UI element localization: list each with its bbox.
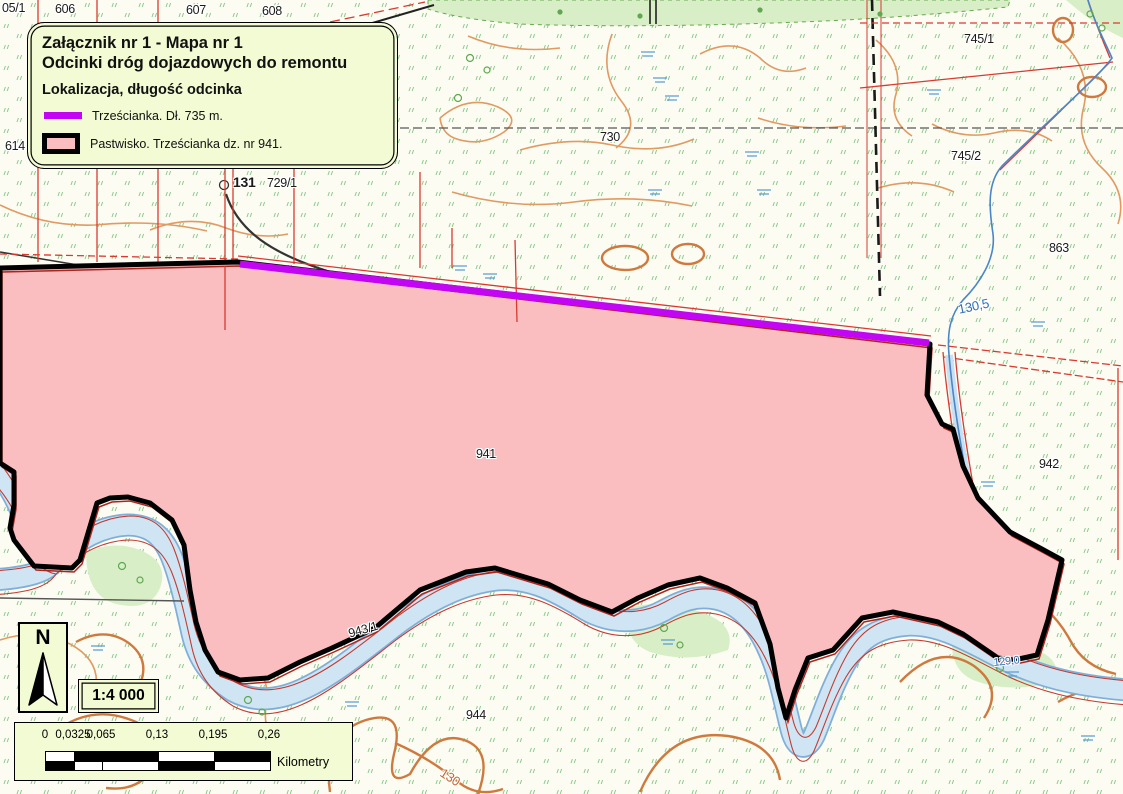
scale-bar-row-bottom: [46, 761, 270, 770]
map-label: 944: [466, 709, 486, 722]
north-arrow-icon: [25, 650, 61, 708]
north-label: N: [20, 626, 66, 650]
legend-swatch-road: [44, 112, 82, 119]
map-label: 745/2: [951, 150, 981, 163]
legend-item-road: Trześcianka. Dł. 735 m.: [42, 105, 397, 126]
scale-bar: [45, 751, 271, 771]
map-label: 05/1: [2, 2, 25, 15]
legend-title-line1: Załącznik nr 1 - Mapa nr 1: [42, 34, 397, 54]
map-label: 131: [233, 175, 255, 189]
north-arrow-box: N: [18, 622, 68, 713]
scale-bar-row-top: [46, 752, 270, 761]
map-label: 608: [262, 5, 282, 18]
map-label: 606: [55, 3, 75, 16]
legend-item-pasture-label: Pastwisko. Trześcianka dz. nr 941.: [90, 137, 282, 151]
legend-title-line2: Odcinki dróg dojazdowych do remontu: [42, 54, 397, 74]
scale-bar-tick-label: 0: [42, 729, 48, 741]
map-label: 941: [476, 448, 496, 461]
scale-bar-box: 00,03250,0650,130,1950,26 Kilometry: [14, 722, 353, 781]
scale-bar-tick-label: 0,26: [258, 729, 280, 741]
map-label: 863: [1049, 242, 1069, 255]
map-label: 745/1: [964, 33, 994, 46]
scale-ratio-text: 1:4 000: [92, 687, 145, 705]
scale-ratio-box: 1:4 000: [78, 679, 159, 713]
scale-bar-tick-label: 0,065: [87, 729, 116, 741]
map-label: 942: [1039, 458, 1059, 471]
scale-bar-tick-label: 0,13: [146, 729, 168, 741]
legend-item-road-label: Trześcianka. Dł. 735 m.: [92, 109, 223, 123]
legend-swatch-pasture: [42, 133, 80, 154]
map-label: 607: [186, 4, 206, 17]
map-label: 730: [600, 131, 620, 144]
map-viewport: 05/1606607608614131729/1730745/1745/2863…: [0, 0, 1123, 794]
legend-section-label: Lokalizacja, długość odcinka: [42, 82, 397, 98]
legend-item-pasture: Pastwisko. Trześcianka dz. nr 941.: [42, 133, 397, 154]
map-label: 614: [5, 140, 25, 153]
scale-bar-tick-label: 0,0325: [55, 729, 90, 741]
legend-panel: Załącznik nr 1 - Mapa nr 1 Odcinki dróg …: [27, 22, 398, 169]
map-label: 729/1: [267, 177, 297, 190]
scale-bar-tick-label: 0,195: [199, 729, 228, 741]
scale-bar-unit: Kilometry: [277, 755, 329, 769]
